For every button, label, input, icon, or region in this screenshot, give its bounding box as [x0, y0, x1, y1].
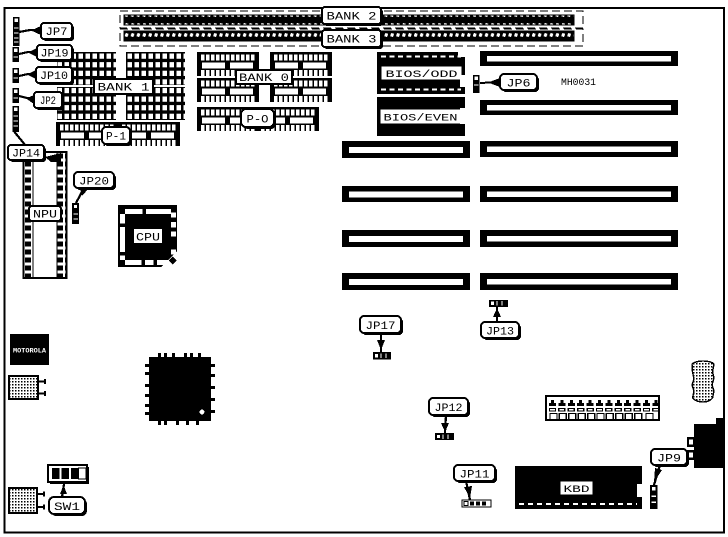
svg-text:JP10: JP10: [40, 71, 68, 83]
svg-text:JP17: JP17: [366, 321, 396, 333]
svg-text:CPU: CPU: [136, 233, 160, 245]
svg-text:JP14: JP14: [12, 149, 40, 161]
svg-text:BANK 0: BANK 0: [239, 73, 289, 85]
svg-text:MOTOROLA: MOTOROLA: [13, 348, 46, 355]
svg-text:JP7: JP7: [46, 27, 68, 39]
svg-text:NPU: NPU: [33, 210, 57, 222]
svg-text:JP19: JP19: [41, 49, 69, 61]
svg-text:BIOS/EVEN: BIOS/EVEN: [384, 113, 458, 125]
svg-text:P-O: P-O: [247, 115, 269, 127]
svg-text:P-1: P-1: [106, 132, 126, 144]
svg-text:SW1: SW1: [54, 502, 81, 514]
svg-text:JP2: JP2: [40, 96, 56, 108]
svg-text:JP9: JP9: [657, 454, 681, 466]
svg-text:JP6: JP6: [507, 79, 531, 91]
svg-text:JP20: JP20: [79, 177, 109, 189]
svg-text:JP13: JP13: [486, 327, 514, 339]
svg-text:KBD: KBD: [564, 484, 590, 496]
svg-text:JP12: JP12: [435, 403, 463, 415]
svg-text:MH0031: MH0031: [561, 78, 596, 89]
svg-text:BANK 2: BANK 2: [327, 12, 377, 24]
svg-text:BIOS/ODD: BIOS/ODD: [386, 69, 458, 81]
svg-text:BANK 1: BANK 1: [98, 83, 151, 95]
svg-text:BANK 3: BANK 3: [327, 35, 377, 47]
svg-text:JP11: JP11: [460, 470, 490, 482]
